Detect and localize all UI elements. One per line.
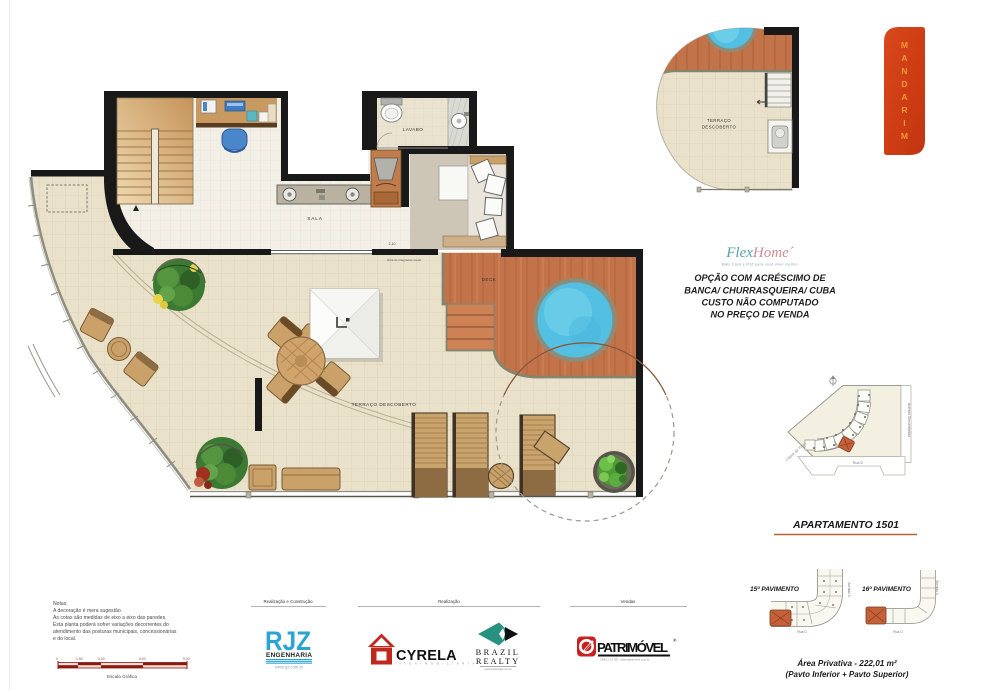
svg-text:LAVABO: LAVABO [403, 127, 424, 132]
svg-text:15º PAVIMENTO: 15º PAVIMENTO [750, 586, 799, 593]
svg-text:DECK: DECK [482, 277, 497, 282]
svg-text:APARTAMENTO 1501: APARTAMENTO 1501 [792, 519, 899, 531]
svg-text:16º PAVIMENTO: 16º PAVIMENTO [862, 586, 911, 593]
svg-text:TERRAÇO: TERRAÇO [707, 118, 731, 123]
svg-text:Vendas: Vendas [621, 599, 636, 604]
svg-text:D: D [901, 79, 907, 89]
svg-text:CRECI J-1700 - www.patrimovel.: CRECI J-1700 - www.patrimovel.com.br [600, 658, 649, 662]
svg-text:FlexHome´: FlexHome´ [725, 245, 794, 261]
svg-text:www.rjz.com.br: www.rjz.com.br [275, 665, 304, 670]
svg-text:Esta planta poderá sofrer vari: Esta planta poderá sofrer variações deco… [53, 622, 169, 628]
svg-text:BANCA/ CHURRASQUEIRA/ CUBA: BANCA/ CHURRASQUEIRA/ CUBA [684, 286, 836, 296]
svg-text:Realização e Construção: Realização e Construção [263, 599, 313, 604]
svg-text:A decoração é mera sugestão.: A decoração é mera sugestão. [53, 608, 122, 614]
svg-text:SALA: SALA [307, 216, 322, 222]
svg-text:ENGENHARIA: ENGENHARIA [266, 652, 312, 659]
svg-text:atendimento das posturas munic: atendimento das posturas municipais, con… [53, 629, 177, 635]
svg-text:Notas:: Notas: [53, 601, 68, 607]
svg-text:Rua D: Rua D [797, 630, 807, 634]
svg-text:www.brazilrealty.com.br: www.brazilrealty.com.br [484, 667, 511, 671]
svg-text:PATRIMÓVEL: PATRIMÓVEL [597, 640, 668, 655]
svg-text:A: A [901, 53, 907, 63]
svg-text:N: N [901, 66, 907, 76]
svg-text:2,10: 2,10 [389, 242, 396, 246]
svg-text:M: M [901, 131, 908, 141]
svg-text:CUSTO NÃO COMPUTADO: CUSTO NÃO COMPUTADO [701, 298, 818, 308]
svg-text:I: I [903, 118, 905, 128]
svg-text:TERRAÇO DESCOBERTO: TERRAÇO DESCOBERTO [352, 402, 417, 407]
svg-text:Avenida S.: Avenida S. [935, 580, 939, 595]
svg-text:Rua D: Rua D [893, 630, 903, 634]
svg-text:e do local.: e do local. [53, 636, 76, 642]
svg-text:(Pavto Inferior + Pavto Superi: (Pavto Inferior + Pavto Superior) [786, 670, 909, 679]
svg-text:OPÇÃO COM ACRÉSCIMO DE: OPÇÃO COM ACRÉSCIMO DE [694, 273, 826, 283]
svg-text:BRAZIL: BRAZIL [476, 648, 521, 657]
svg-text:Avenida S.: Avenida S. [847, 582, 851, 597]
svg-text:DESCOBERTO: DESCOBERTO [702, 125, 737, 130]
svg-text:As cotas são medidas de eixo a: As cotas são medidas de eixo a eixo das … [53, 615, 167, 621]
svg-text:NO PREÇO DE VENDA: NO PREÇO DE VENDA [710, 310, 809, 320]
svg-text:3,00: 3,00 [98, 657, 105, 661]
svg-text:0: 0 [56, 657, 58, 661]
svg-text:REALTY: REALTY [476, 657, 520, 666]
svg-text:M: M [901, 40, 908, 50]
svg-text:Mais Casa e RJZ para você vive: Mais Casa e RJZ para você viver melhor [722, 263, 799, 267]
svg-text:1,50: 1,50 [76, 657, 83, 661]
svg-text:V I D A I M O B I L I A R I A: V I D A I M O B I L I A R I A [399, 662, 476, 666]
svg-text:6,00: 6,00 [139, 657, 146, 661]
svg-text:R: R [901, 105, 908, 115]
svg-text:Escala Gráfica: Escala Gráfica [107, 674, 137, 679]
svg-text:Área Privativa - 222,01 m²: Área Privativa - 222,01 m² [796, 658, 896, 668]
svg-text:linha de integracao social: linha de integracao social [387, 258, 421, 262]
svg-text:A: A [901, 92, 907, 102]
svg-text:9,00: 9,00 [183, 657, 190, 661]
svg-text:Avenida Sernambetiba: Avenida Sernambetiba [907, 403, 911, 437]
svg-text:Realização: Realização [438, 599, 460, 604]
svg-text:Rua D: Rua D [853, 461, 864, 465]
